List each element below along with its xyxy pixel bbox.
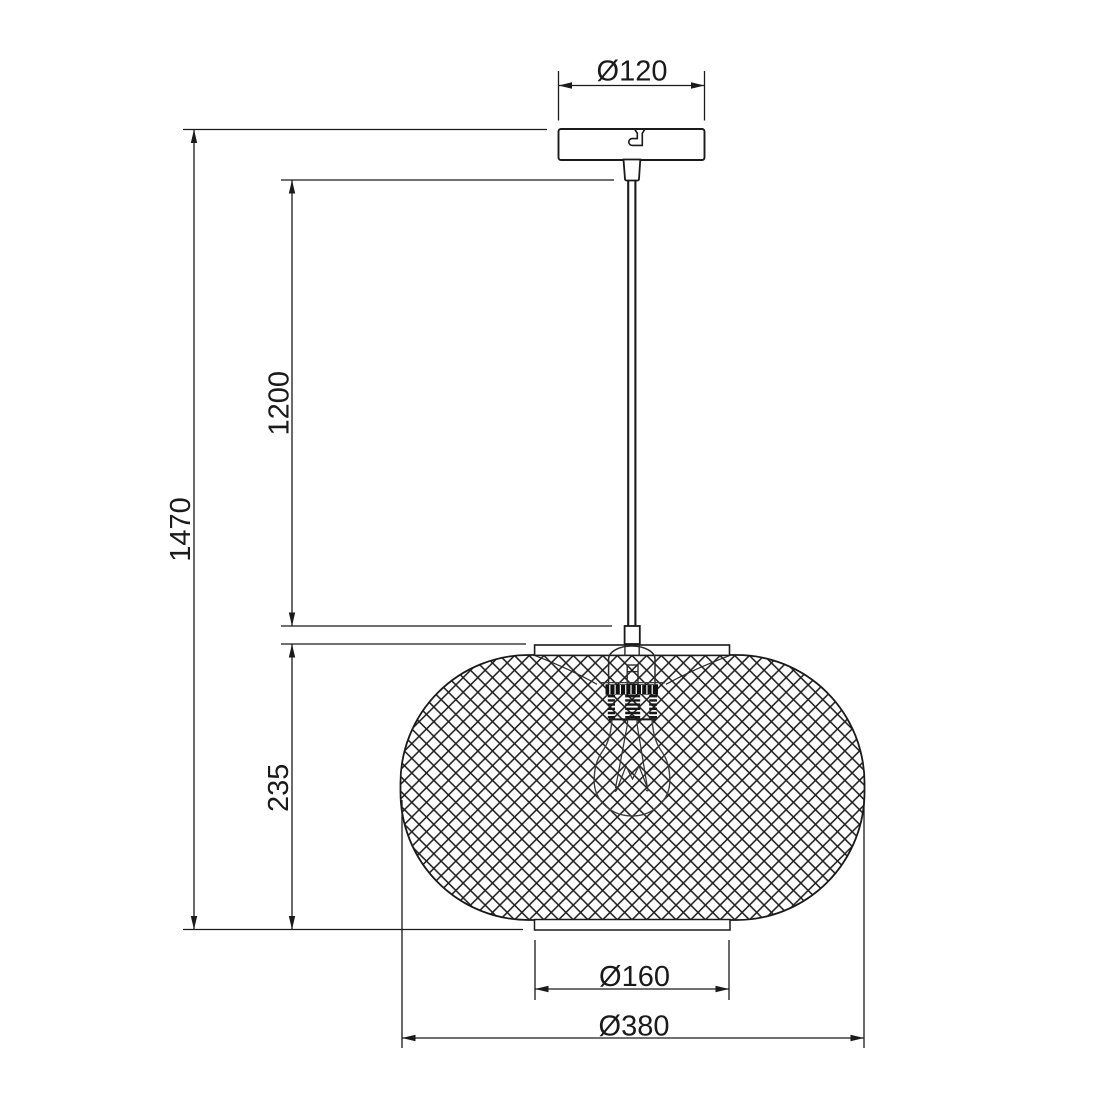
svg-text:Ø120: Ø120 — [597, 56, 668, 88]
svg-text:1470: 1470 — [165, 497, 197, 562]
svg-text:1200: 1200 — [263, 371, 295, 436]
svg-text:Ø380: Ø380 — [599, 1011, 670, 1043]
svg-text:235: 235 — [263, 764, 295, 812]
svg-text:Ø160: Ø160 — [599, 961, 670, 993]
